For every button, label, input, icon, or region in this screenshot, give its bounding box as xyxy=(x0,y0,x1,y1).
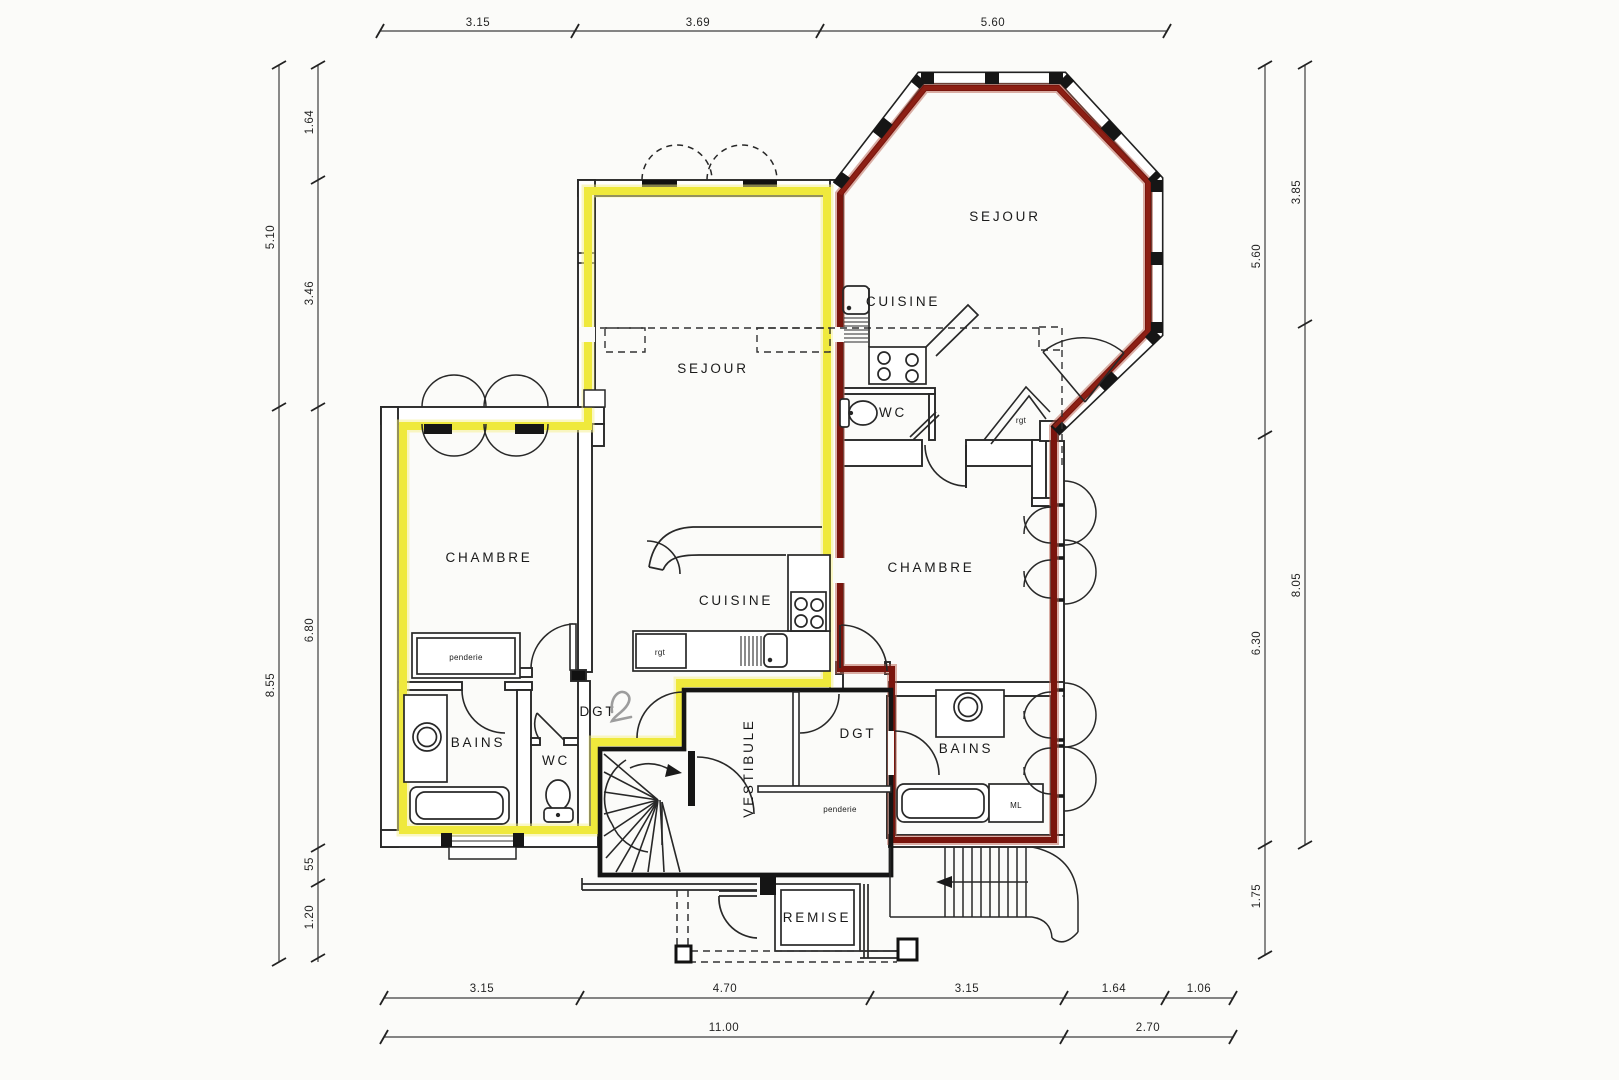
svg-text:CHAMBRE: CHAMBRE xyxy=(887,560,974,575)
svg-text:rgt: rgt xyxy=(655,648,666,657)
svg-text:CUISINE: CUISINE xyxy=(866,294,940,309)
svg-text:55: 55 xyxy=(304,857,316,871)
svg-text:5.60: 5.60 xyxy=(1251,244,1263,268)
svg-text:3.15: 3.15 xyxy=(466,17,490,29)
svg-text:5.60: 5.60 xyxy=(981,17,1005,29)
svg-text:1.75: 1.75 xyxy=(1251,884,1263,908)
svg-text:WC: WC xyxy=(542,753,570,768)
svg-text:3.85: 3.85 xyxy=(1291,180,1303,204)
svg-text:REMISE: REMISE xyxy=(783,910,852,925)
svg-text:3.46: 3.46 xyxy=(304,281,316,305)
svg-text:6.30: 6.30 xyxy=(1251,631,1263,655)
svg-text:2.70: 2.70 xyxy=(1136,1022,1160,1034)
svg-text:CUISINE: CUISINE xyxy=(699,593,773,608)
svg-text:penderie: penderie xyxy=(449,653,483,662)
svg-text:8.55: 8.55 xyxy=(265,673,277,697)
svg-text:BAINS: BAINS xyxy=(451,735,506,750)
svg-text:DGT: DGT xyxy=(840,726,877,741)
svg-text:1.20: 1.20 xyxy=(304,905,316,929)
svg-text:3.15: 3.15 xyxy=(955,983,979,995)
svg-text:VESTIBULE: VESTIBULE xyxy=(741,718,756,817)
svg-text:WC: WC xyxy=(879,405,907,420)
svg-text:BAINS: BAINS xyxy=(939,741,994,756)
svg-text:rgt: rgt xyxy=(1016,416,1027,425)
svg-text:6.80: 6.80 xyxy=(304,618,316,642)
svg-text:SEJOUR: SEJOUR xyxy=(969,209,1041,224)
svg-text:3.69: 3.69 xyxy=(686,17,710,29)
svg-text:4.70: 4.70 xyxy=(713,983,737,995)
svg-text:5.10: 5.10 xyxy=(265,225,277,249)
svg-text:SEJOUR: SEJOUR xyxy=(677,361,749,376)
svg-text:1.64: 1.64 xyxy=(1102,983,1126,995)
svg-text:penderie: penderie xyxy=(823,805,857,814)
svg-text:1.06: 1.06 xyxy=(1187,983,1211,995)
svg-text:CHAMBRE: CHAMBRE xyxy=(445,550,532,565)
svg-text:3.15: 3.15 xyxy=(470,983,494,995)
svg-text:ML: ML xyxy=(1010,801,1022,810)
svg-text:8.05: 8.05 xyxy=(1291,573,1303,597)
svg-text:1.64: 1.64 xyxy=(304,110,316,134)
svg-text:11.00: 11.00 xyxy=(709,1022,739,1034)
